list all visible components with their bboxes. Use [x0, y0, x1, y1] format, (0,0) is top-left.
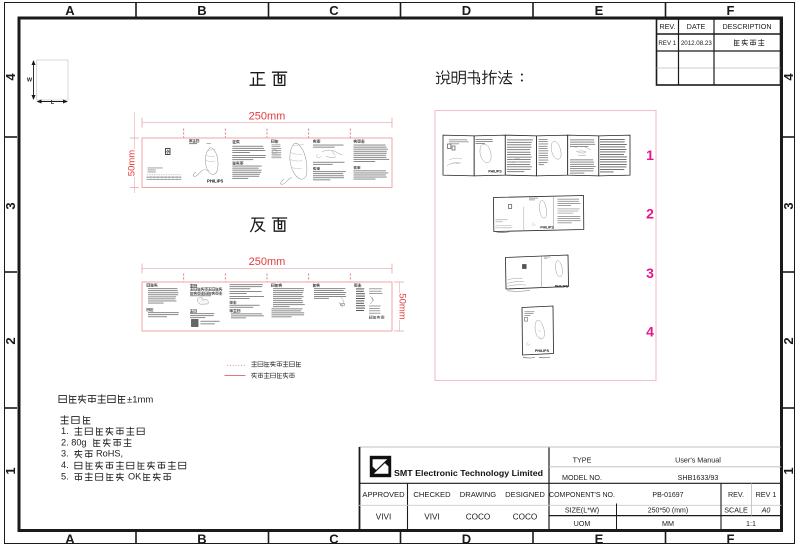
svg-text:A: A: [65, 532, 75, 547]
svg-text:REV.: REV.: [659, 22, 675, 31]
svg-text:PHILIPS: PHILIPS: [488, 170, 502, 174]
svg-text:COMPONENT'S NO.: COMPONENT'S NO.: [549, 492, 615, 499]
svg-text:D: D: [462, 532, 471, 547]
svg-text:F: F: [727, 3, 735, 18]
svg-text:50mm: 50mm: [127, 150, 138, 176]
svg-text:1:1: 1:1: [746, 519, 756, 528]
svg-text:250*50 (mm): 250*50 (mm): [648, 508, 688, 515]
svg-text:DATE: DATE: [687, 22, 706, 31]
svg-text:3: 3: [3, 202, 18, 209]
svg-text:DRAWING: DRAWING: [460, 490, 497, 499]
svg-text:DESIGNED: DESIGNED: [505, 490, 545, 499]
svg-text:2: 2: [3, 337, 18, 344]
svg-text:PHILIPS: PHILIPS: [540, 225, 554, 229]
svg-text:MODEL NO.: MODEL NO.: [562, 473, 602, 482]
svg-text:RoHS,: RoHS,: [96, 449, 123, 459]
svg-text:1: 1: [3, 467, 18, 474]
svg-text:DESCRIPTION: DESCRIPTION: [722, 22, 771, 31]
svg-text:REV 1: REV 1: [658, 40, 676, 47]
svg-text:SCALE: SCALE: [724, 506, 748, 515]
svg-text:PHILIPS: PHILIPS: [535, 349, 550, 353]
svg-text:250mm: 250mm: [249, 111, 286, 123]
svg-text:B: B: [197, 532, 206, 547]
svg-text:F: F: [727, 532, 735, 547]
svg-text:COCO: COCO: [513, 513, 538, 522]
svg-text:3: 3: [646, 265, 654, 281]
svg-text:REV 1: REV 1: [756, 490, 777, 499]
svg-text:D: D: [462, 3, 471, 18]
svg-text:PB-01697: PB-01697: [652, 492, 683, 499]
svg-text:APPROVED: APPROVED: [362, 490, 405, 499]
svg-text:SMT Electronic Technology Limi: SMT Electronic Technology Limited: [394, 468, 543, 478]
svg-text:4: 4: [3, 73, 18, 81]
svg-text:1.: 1.: [61, 426, 69, 436]
svg-text:250mm: 250mm: [249, 256, 286, 268]
svg-text:±1mm: ±1mm: [127, 394, 153, 405]
svg-text:2012.08.23: 2012.08.23: [681, 40, 713, 47]
svg-text:VIVI: VIVI: [376, 513, 391, 522]
svg-text:4.: 4.: [61, 460, 69, 470]
svg-text:C: C: [329, 532, 339, 547]
svg-text:50mm: 50mm: [397, 293, 408, 319]
svg-text:2. 80g: 2. 80g: [61, 437, 87, 447]
svg-text:E: E: [595, 532, 604, 547]
svg-text:A0: A0: [761, 506, 771, 515]
svg-text:SIZE(L*W): SIZE(L*W): [565, 506, 599, 515]
svg-text:CHECKED: CHECKED: [413, 490, 451, 499]
svg-text:OK: OK: [128, 472, 142, 482]
svg-text:PHILIPS: PHILIPS: [207, 178, 223, 183]
svg-text:MM: MM: [662, 519, 674, 528]
svg-text:TYPE: TYPE: [573, 455, 592, 464]
svg-text:SHB1633/93: SHB1633/93: [678, 473, 719, 482]
svg-text:4: 4: [646, 323, 654, 339]
svg-text:User's Manual: User's Manual: [675, 455, 721, 464]
svg-text:VIVI: VIVI: [424, 513, 439, 522]
svg-text:C: C: [329, 3, 339, 18]
svg-text:5.: 5.: [61, 472, 69, 482]
svg-text:COCO: COCO: [466, 513, 491, 522]
svg-text:2: 2: [646, 205, 654, 221]
svg-text:PHILIPS: PHILIPS: [555, 284, 569, 288]
svg-text:3.: 3.: [61, 449, 69, 459]
svg-text:B: B: [197, 3, 206, 18]
svg-text:UOM: UOM: [574, 519, 591, 528]
svg-text:REV.: REV.: [728, 490, 744, 499]
svg-text:A: A: [65, 3, 75, 18]
svg-text:1: 1: [781, 467, 796, 474]
svg-text:3: 3: [781, 202, 796, 209]
svg-text:1: 1: [646, 147, 654, 163]
svg-text:2: 2: [781, 337, 796, 344]
svg-text:E: E: [595, 3, 604, 18]
svg-text:4: 4: [781, 73, 796, 81]
svg-text:W: W: [27, 78, 33, 84]
